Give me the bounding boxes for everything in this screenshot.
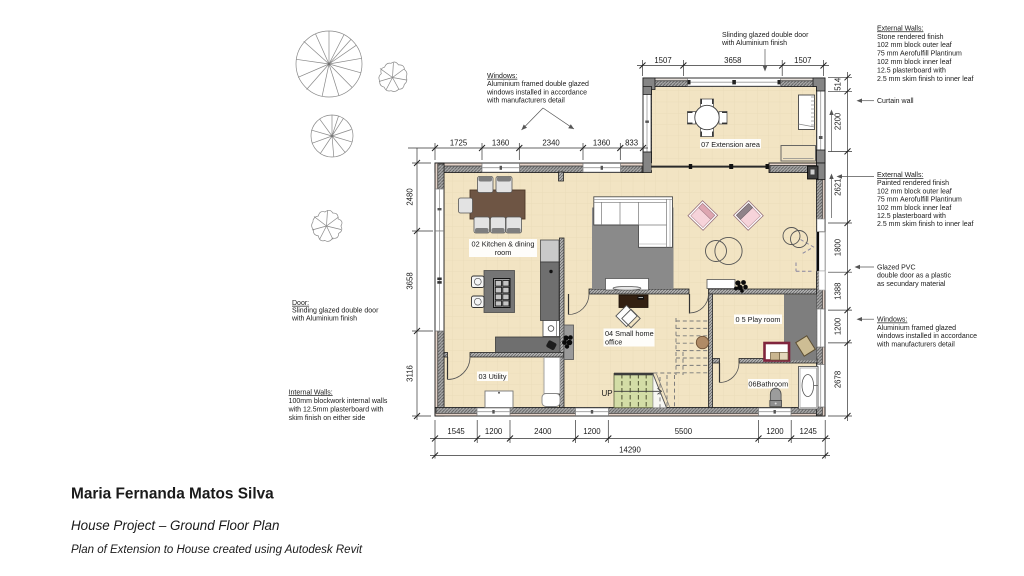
svg-text:2400: 2400 <box>534 427 552 436</box>
svg-text:Plan of Extension to House cre: Plan of Extension to House created using… <box>71 544 363 556</box>
svg-text:Aluminium framed double glazed: Aluminium framed double glazed <box>487 81 589 88</box>
svg-text:with Aluminium finish: with Aluminium finish <box>721 40 787 47</box>
svg-text:100mm blockwork internal walls: 100mm blockwork internal walls <box>289 398 388 405</box>
svg-text:Aluminium framed glazed: Aluminium framed glazed <box>877 325 956 332</box>
svg-text:House Project – Ground Floor P: House Project – Ground Floor Plan <box>71 518 279 533</box>
svg-text:Maria Fernanda Matos Silva: Maria Fernanda Matos Silva <box>71 486 274 503</box>
svg-text:2678: 2678 <box>834 371 843 388</box>
svg-text:Painted rendered finish: Painted rendered finish <box>877 180 949 187</box>
svg-text:with Aluminium finish: with Aluminium finish <box>291 315 357 322</box>
svg-text:skim finish on either side: skim finish on either side <box>289 415 366 422</box>
svg-text:1800: 1800 <box>834 238 843 256</box>
svg-text:1200: 1200 <box>583 427 601 436</box>
svg-text:5500: 5500 <box>675 427 693 436</box>
svg-text:office: office <box>605 338 622 347</box>
svg-text:1507: 1507 <box>654 56 671 65</box>
svg-text:Internal Walls:: Internal Walls: <box>289 389 333 396</box>
svg-text:07 Extension area: 07 Extension area <box>701 140 761 149</box>
svg-text:03 Utility: 03 Utility <box>479 372 507 381</box>
svg-text:1200: 1200 <box>766 427 784 436</box>
svg-text:room: room <box>495 248 512 257</box>
svg-text:1200: 1200 <box>834 317 843 335</box>
svg-text:1360: 1360 <box>593 138 611 147</box>
svg-text:with manufacturers detail: with manufacturers detail <box>486 98 565 105</box>
svg-text:1507: 1507 <box>794 56 811 65</box>
svg-text:102 mm block inner leaf: 102 mm block inner leaf <box>877 59 951 66</box>
svg-text:External Walls:: External Walls: <box>877 25 923 32</box>
svg-text:Glazed PVC: Glazed PVC <box>877 264 916 271</box>
svg-text:as secundary material: as secundary material <box>877 281 946 288</box>
svg-text:102 mm block inner leaf: 102 mm block inner leaf <box>877 205 951 212</box>
svg-text:Slinding glazed double door: Slinding glazed double door <box>722 32 809 39</box>
svg-text:2.5 mm skim finish to inner le: 2.5 mm skim finish to inner leaf <box>877 76 974 83</box>
svg-text:Curtain wall: Curtain wall <box>877 98 914 105</box>
svg-text:Slinding glazed double door: Slinding glazed double door <box>292 308 379 315</box>
svg-text:14290: 14290 <box>619 445 641 454</box>
svg-text:12.5 plasterboard with: 12.5 plasterboard with <box>877 213 946 220</box>
svg-text:75 mm Aerofulfill Plantinum: 75 mm Aerofulfill Plantinum <box>877 51 962 58</box>
svg-text:2621: 2621 <box>834 179 843 196</box>
svg-text:with 12.5mm plasterboard with: with 12.5mm plasterboard with <box>288 406 384 413</box>
svg-text:3658: 3658 <box>405 272 414 289</box>
svg-text:1388: 1388 <box>834 283 843 300</box>
svg-text:double door as a plastic: double door as a plastic <box>877 273 951 280</box>
svg-text:833: 833 <box>625 138 638 147</box>
svg-text:windows installed in accordanc: windows installed in accordance <box>486 89 587 96</box>
svg-text:3116: 3116 <box>405 365 414 382</box>
svg-text:0 5 Play room: 0 5 Play room <box>735 315 780 324</box>
svg-text:2200: 2200 <box>834 112 843 130</box>
svg-text:1725: 1725 <box>450 138 468 147</box>
svg-text:UP: UP <box>602 389 613 398</box>
svg-text:Windows:: Windows: <box>487 73 517 80</box>
svg-text:2.5 mm skim finish to inner le: 2.5 mm skim finish to inner leaf <box>877 221 974 228</box>
svg-text:External Walls:: External Walls: <box>877 172 923 179</box>
svg-text:06Bathroom: 06Bathroom <box>748 380 788 389</box>
svg-text:3658: 3658 <box>724 56 741 65</box>
svg-text:2480: 2480 <box>405 188 414 206</box>
svg-text:1545: 1545 <box>447 427 465 436</box>
svg-text:windows installed in accordanc: windows installed in accordance <box>876 333 977 340</box>
svg-text:1360: 1360 <box>492 138 510 147</box>
svg-text:12.5 plasterboard with: 12.5 plasterboard with <box>877 67 946 74</box>
svg-text:Door:: Door: <box>292 300 309 307</box>
svg-text:102 mm block outer leaf: 102 mm block outer leaf <box>877 188 952 195</box>
svg-text:75 mm Aerofulfill Plantinum: 75 mm Aerofulfill Plantinum <box>877 197 962 204</box>
svg-text:514: 514 <box>834 77 843 91</box>
svg-text:Windows:: Windows: <box>877 317 907 324</box>
svg-text:1245: 1245 <box>800 427 818 436</box>
svg-text:with manufacturers detail: with manufacturers detail <box>876 341 955 348</box>
svg-text:102 mm block outer leaf: 102 mm block outer leaf <box>877 42 952 49</box>
svg-text:1200: 1200 <box>485 427 503 436</box>
svg-text:2340: 2340 <box>542 138 560 147</box>
svg-text:Stone rendered finish: Stone rendered finish <box>877 34 944 41</box>
